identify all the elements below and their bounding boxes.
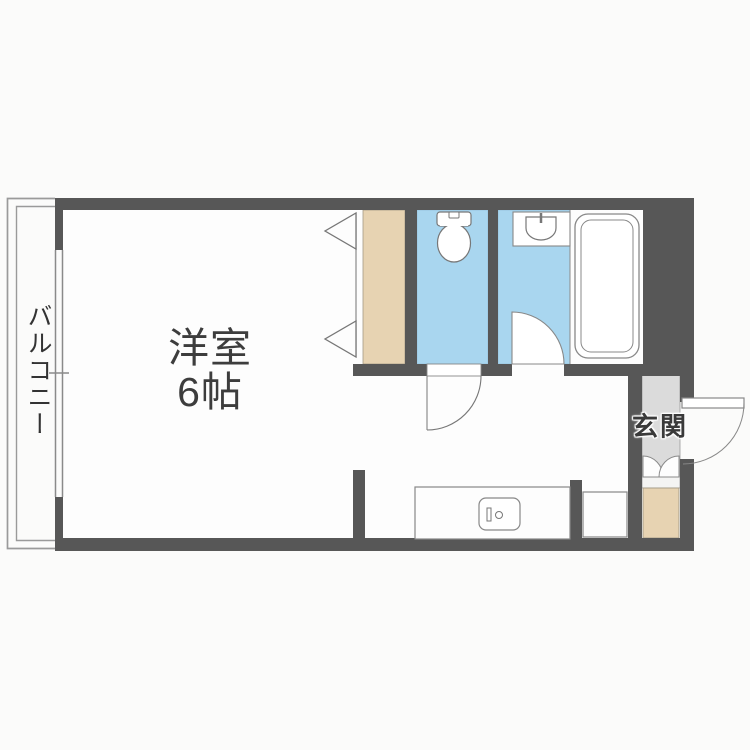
washbasin: [513, 212, 570, 246]
toilet-fixture: [437, 212, 471, 262]
kitchen-faucet: [487, 508, 491, 521]
wall-window-bottom-stub: [55, 497, 63, 551]
toilet-seat-joint: [440, 222, 468, 226]
main-room-size: 6帖: [168, 371, 252, 415]
floorplan-drawing: [0, 0, 750, 750]
entrance-label: 玄関: [632, 407, 688, 444]
closet-area: [363, 210, 405, 364]
shoe-cabinet: [643, 488, 679, 538]
wall-under-closet: [353, 364, 427, 376]
main-room-name: 洋室: [168, 327, 252, 371]
main-room-label: 洋室 6帖: [168, 327, 252, 415]
wall-under-washroom: [564, 364, 680, 376]
kitchen-counter: [415, 487, 570, 539]
wall-kitchen-left-stub: [353, 470, 365, 551]
wall-toilet-washroom: [488, 210, 498, 364]
toilet-bowl: [438, 224, 471, 262]
wall-kitchen-right-stub: [570, 480, 582, 551]
balcony-label: バルコニー: [20, 303, 56, 438]
washer-space: [583, 492, 627, 537]
wall-under-toilet: [481, 364, 512, 376]
wall-right-upper: [680, 198, 694, 402]
wall-right-lower: [680, 459, 694, 551]
toilet-flush-button: [449, 212, 459, 218]
wall-closet-toilet: [405, 210, 417, 364]
wall-pipe-space: [643, 198, 680, 375]
wall-bottom: [55, 538, 694, 551]
wall-window-top-stub: [55, 198, 63, 250]
bathtub: [575, 214, 639, 358]
wall-entrance-left: [628, 375, 642, 551]
floorplan-canvas: 洋室 6帖 バルコニー 玄関: [0, 0, 750, 750]
kitchen-drain: [496, 512, 503, 519]
wall-top: [55, 198, 694, 210]
